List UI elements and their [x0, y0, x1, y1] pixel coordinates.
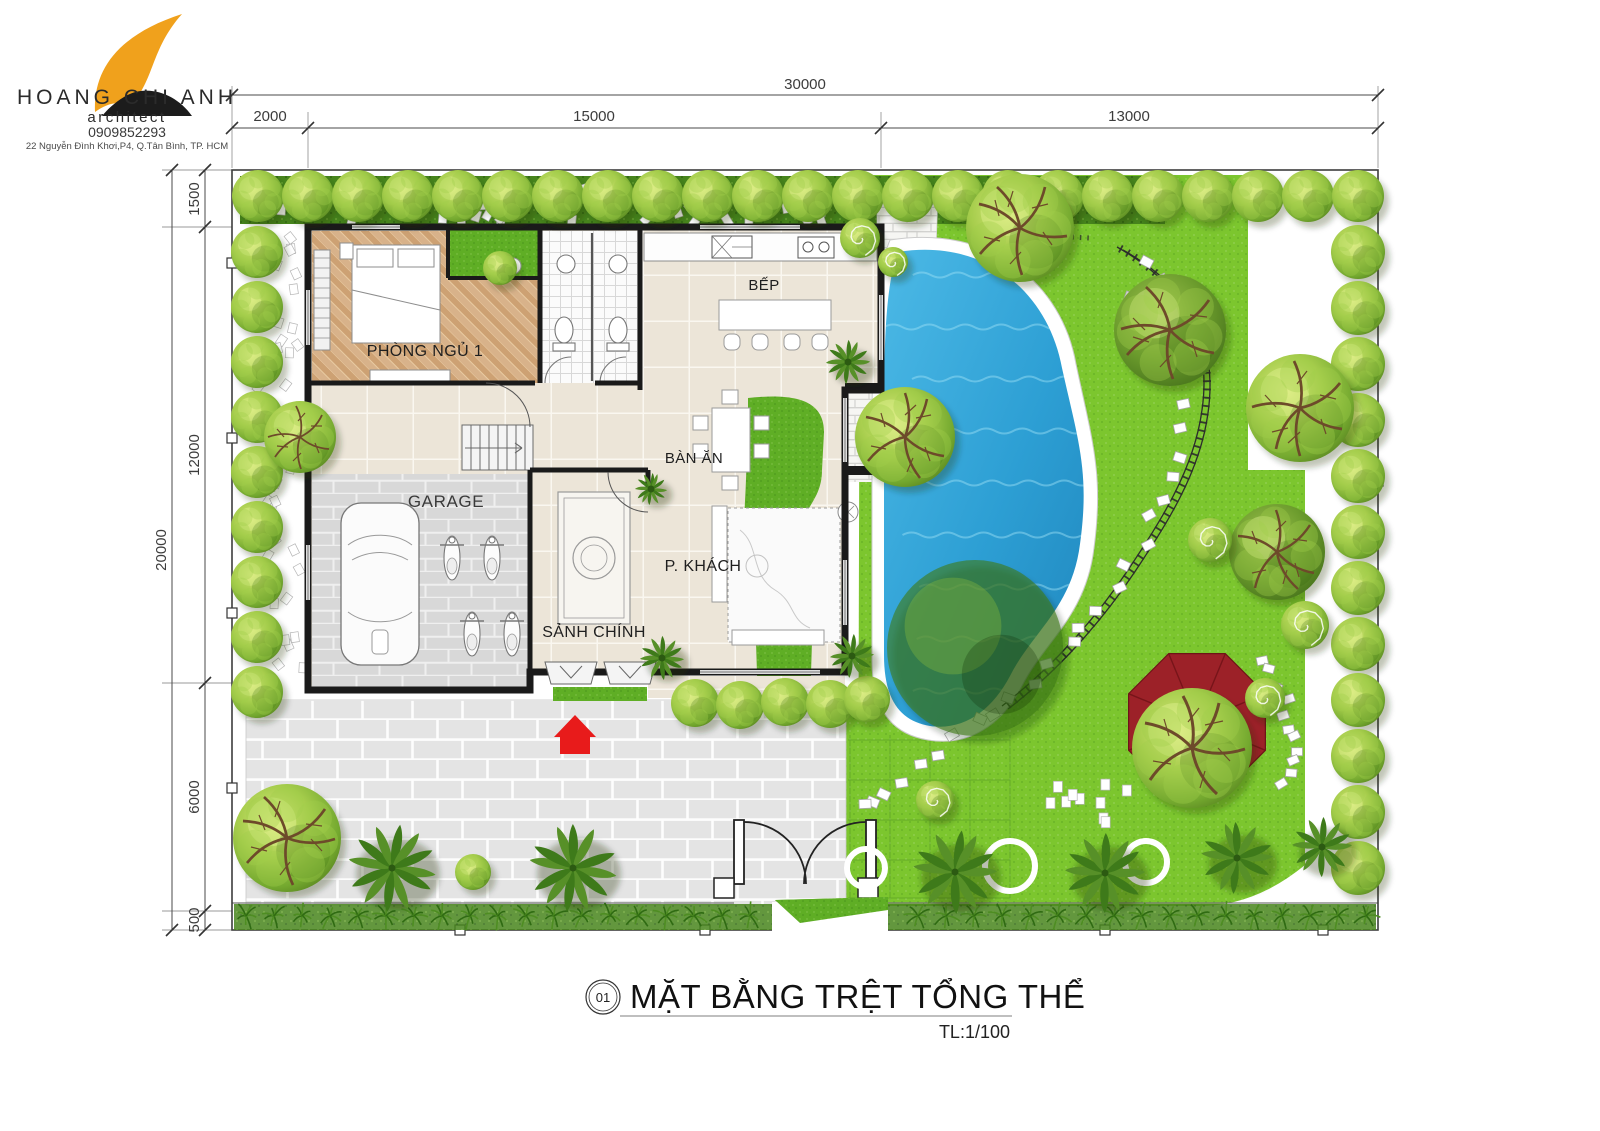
- paver-stone: [931, 750, 944, 761]
- paver-stone: [1101, 779, 1110, 790]
- paver-stone: [1096, 797, 1105, 808]
- dim-left-seg-1: 1500: [186, 182, 203, 215]
- bed: [352, 245, 440, 343]
- logo: HOANG CHI ANH architect 0909852293 22 Ng…: [17, 14, 237, 152]
- paver-stone: [290, 632, 299, 643]
- site-plan-sheet: HOANG CHI ANH architect 0909852293 22 Ng…: [0, 0, 1600, 1131]
- sheet-number: 01: [596, 990, 610, 1005]
- kitchen-island: [719, 300, 831, 330]
- dimension-top: 30000 2000 15000 13000: [226, 76, 1384, 134]
- paver-stone: [1101, 817, 1110, 828]
- paver-stone: [1046, 798, 1055, 809]
- tree-icon: [1331, 561, 1390, 621]
- brand-address: 22 Nguyễn Đình Khơi,P4, Q.Tân Bình, TP. …: [26, 141, 228, 152]
- paver-stone: [284, 231, 296, 244]
- dim-left-seg-2: 12000: [186, 434, 203, 476]
- brand-phone: 0909852293: [88, 124, 166, 140]
- sofa: [712, 506, 727, 602]
- sheet-title: MẶT BẰNG TRỆT TỔNG THỂ: [630, 978, 1085, 1015]
- tree-icon: [1331, 729, 1390, 789]
- paver-stone: [1053, 781, 1062, 792]
- paver-stone: [1167, 472, 1180, 482]
- tree-icon: [1332, 170, 1389, 228]
- dim-left-seg-3: 6000: [186, 780, 203, 813]
- dimension-left: 20000 1500 12000 6000 500: [153, 164, 211, 936]
- paver-stone: [1177, 398, 1191, 409]
- brand-name: HOANG CHI ANH: [17, 86, 237, 109]
- tree-icon: [1331, 673, 1390, 733]
- tree-icon: [231, 666, 288, 724]
- paver-stone: [1072, 623, 1084, 632]
- bathroom-floor: [540, 231, 640, 383]
- tree-icon: [231, 501, 288, 559]
- tree-icon: [1331, 281, 1390, 341]
- tree-icon: [231, 556, 288, 614]
- label-living: P. KHÁCH: [665, 556, 742, 575]
- paver-stone: [914, 759, 927, 770]
- site-plan-drawing: HOANG CHI ANH architect 0909852293 22 Ng…: [0, 0, 1600, 1131]
- dim-top-seg-2: 15000: [573, 108, 615, 125]
- paver-stone: [1068, 789, 1077, 800]
- title-block: 01 MẶT BẰNG TRỆT TỔNG THỂ TL:1/100: [586, 978, 1085, 1042]
- tree-icon: [1331, 617, 1390, 677]
- dim-left-seg-4: 500: [186, 907, 203, 932]
- tree-icon: [231, 281, 288, 339]
- tree-icon: [1331, 505, 1390, 565]
- label-dining: BÀN ĂN: [665, 450, 723, 467]
- dim-top-total: 30000: [784, 76, 826, 93]
- dresser: [370, 370, 450, 381]
- paver-stone: [1089, 606, 1101, 615]
- paver-stone: [1068, 637, 1080, 646]
- paver-stone: [1122, 785, 1131, 796]
- tree-icon: [231, 611, 288, 669]
- tree-icon: [231, 226, 288, 284]
- entry-hedge: [553, 687, 647, 701]
- sheet-scale: TL:1/100: [939, 1022, 1010, 1042]
- paver-stone: [895, 778, 908, 789]
- dim-left-total: 20000: [153, 529, 170, 571]
- rug: [728, 508, 840, 642]
- label-garage: GARAGE: [408, 492, 484, 511]
- paver-stone: [859, 799, 871, 808]
- paver-stone: [289, 284, 298, 295]
- tree-icon: [1331, 449, 1390, 509]
- sofa: [732, 630, 824, 645]
- label-kitchen: BẾP: [748, 277, 779, 294]
- dim-top-seg-3: 13000: [1108, 108, 1150, 125]
- paver-stone: [1285, 768, 1297, 777]
- paver-stone: [293, 563, 305, 576]
- paver-stone: [285, 348, 293, 358]
- paver-stone: [290, 268, 301, 280]
- tree-icon: [1282, 170, 1339, 228]
- label-lobby: SẢNH CHÍNH: [542, 622, 646, 641]
- lobby-floor-medallion: [558, 492, 630, 624]
- nightstand: [340, 243, 353, 259]
- paver-stone: [288, 544, 300, 556]
- label-bedroom: PHÒNG NGỦ 1: [367, 341, 483, 360]
- tree-icon: [1331, 225, 1390, 285]
- paver-stone: [287, 323, 297, 335]
- dim-top-seg-1: 2000: [253, 108, 286, 125]
- stairs: [462, 425, 533, 470]
- wardrobe: [314, 250, 330, 350]
